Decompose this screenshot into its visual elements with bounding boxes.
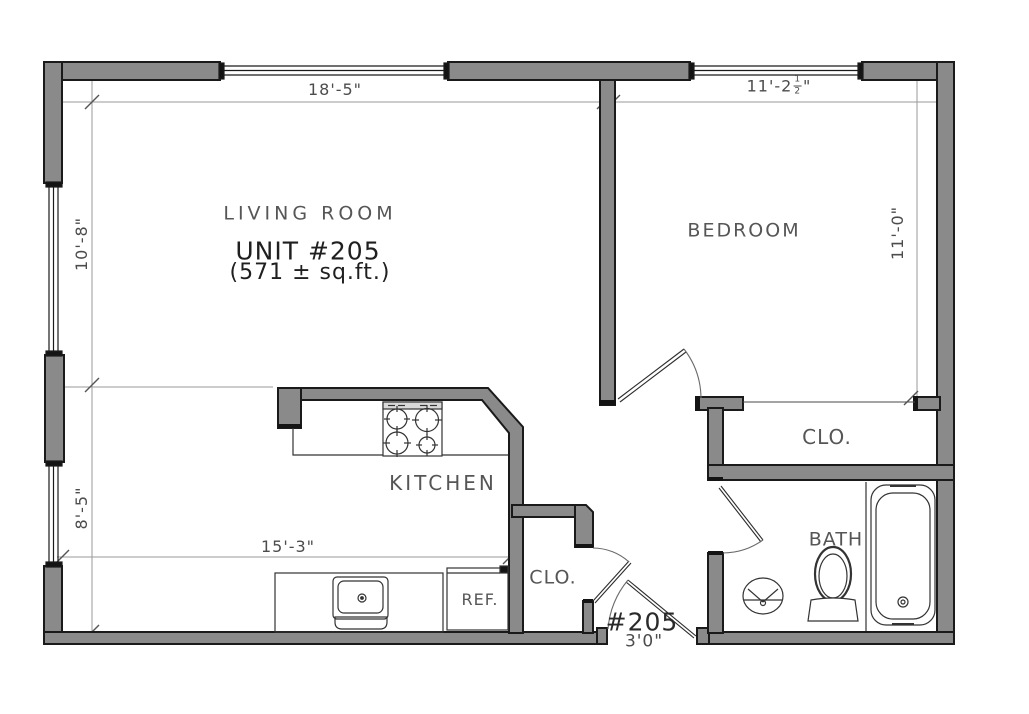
kitchen-label: KITCHEN (389, 473, 497, 493)
entry-closet-label: CLO. (529, 569, 576, 588)
dim-living-height-lower: 8'-5" (74, 487, 90, 530)
bedroom-closet-label: CLO. (802, 427, 852, 447)
dim-bedroom-width-fraction: 12 (793, 76, 802, 97)
wall-top-middle (448, 62, 690, 80)
refrigerator-label: REF. (462, 592, 499, 608)
fraction-denominator: 2 (793, 87, 802, 97)
wall-bottom-right (697, 632, 954, 644)
dim-bedroom-height: 11'-0" (890, 206, 906, 260)
floor-plan: LIVING ROOM UNIT #205 (571 ± sq.ft.) BED… (0, 0, 1029, 714)
dim-bedroom-width: 11'-212" (747, 76, 812, 97)
wall-bedroom-divider (600, 80, 615, 405)
wall-bedroom-closet-left (708, 408, 723, 467)
dim-living-height-upper: 10'-8" (74, 217, 90, 271)
bath-label: BATH (809, 531, 863, 550)
stove (383, 402, 442, 457)
wall-top-left (44, 62, 220, 80)
wall-kitchen-left-stub (278, 388, 301, 428)
dim-bedroom-width-prefix: 11'-2 (747, 77, 793, 96)
wall-bath-left (708, 553, 723, 633)
living-room-label: LIVING ROOM (223, 205, 396, 224)
fraction-numerator: 1 (793, 76, 802, 87)
dim-bedroom-width-suffix: " (803, 77, 811, 96)
unit-area-label: (571 ± sq.ft.) (230, 262, 391, 284)
floor-plan-drawing (0, 0, 1029, 714)
dim-kitchen-width: 15'-3" (261, 539, 315, 555)
wall-entry-closet-jamb (583, 601, 593, 633)
dim-living-width: 18'-5" (308, 82, 362, 98)
wall-bedroom-closet-bottom (708, 465, 954, 480)
wall-entry-closet-corner (575, 505, 593, 547)
wall-left-upper (44, 62, 62, 183)
entry-door-width-label: 3'0" (625, 634, 663, 651)
wall-left-middle-pier (45, 355, 64, 462)
wall-right (937, 62, 954, 644)
bedroom-label: BEDROOM (687, 222, 800, 241)
wall-bedroom-closet-right-stub (915, 397, 940, 410)
